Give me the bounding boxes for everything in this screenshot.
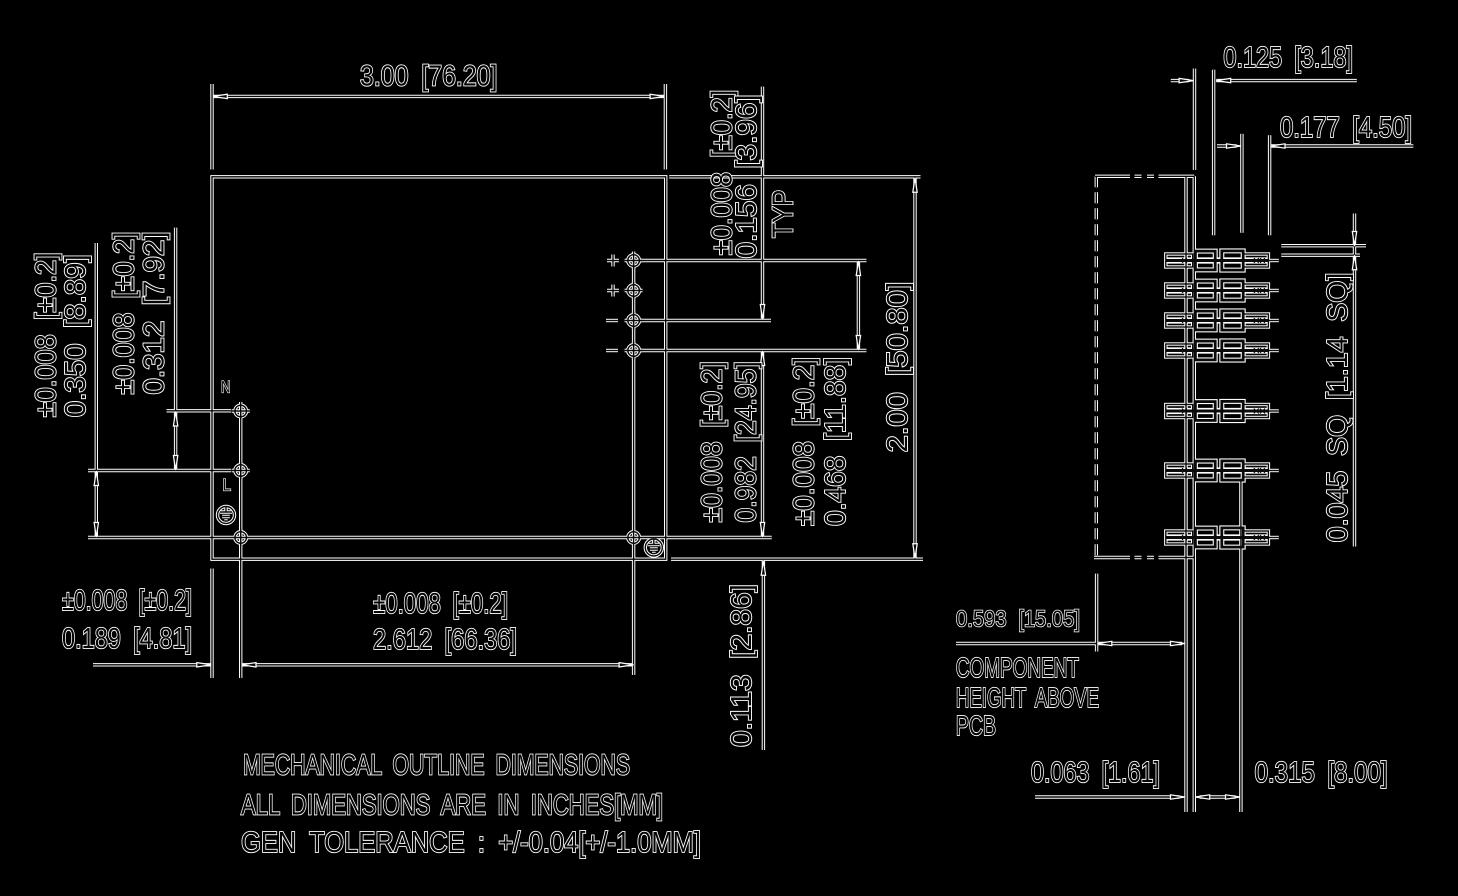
svg-text:COMPONENT: COMPONENT bbox=[956, 652, 1079, 683]
svg-text:±0.008 [±0.2]: ±0.008 [±0.2] bbox=[108, 232, 140, 395]
svg-text:3.00 [76.20]: 3.00 [76.20] bbox=[360, 61, 497, 93]
svg-text:2.612 [66.36]: 2.612 [66.36] bbox=[373, 624, 517, 656]
svg-text:TYP: TYP bbox=[768, 190, 800, 238]
svg-text:±0.008 [±0.2]: ±0.008 [±0.2] bbox=[789, 357, 821, 526]
svg-text:0.063 [1.61]: 0.063 [1.61] bbox=[1031, 757, 1160, 789]
svg-text:0.189 [4.81]: 0.189 [4.81] bbox=[62, 623, 192, 655]
svg-text:L: L bbox=[223, 477, 232, 495]
svg-text:MECHANICAL OUTLINE DIMENSIONS: MECHANICAL OUTLINE DIMENSIONS bbox=[243, 750, 630, 782]
svg-text:±0.008 [±0.2]: ±0.008 [±0.2] bbox=[31, 252, 63, 417]
svg-text:2.00 [50.80]: 2.00 [50.80] bbox=[882, 282, 914, 453]
svg-text:HEIGHT ABOVE: HEIGHT ABOVE bbox=[956, 682, 1099, 713]
svg-text:0.315 [8.00]: 0.315 [8.00] bbox=[1255, 757, 1388, 789]
svg-text:0.468 [11.88]: 0.468 [11.88] bbox=[820, 357, 852, 526]
svg-text:0.156 [3.96]: 0.156 [3.96] bbox=[731, 94, 763, 258]
svg-text:0.593 [15.05]: 0.593 [15.05] bbox=[956, 606, 1080, 632]
svg-text:±0.008 [±0.2]: ±0.008 [±0.2] bbox=[697, 361, 729, 522]
svg-text:0.982 [24.95]: 0.982 [24.95] bbox=[731, 361, 763, 522]
svg-text:0.350 [8.89]: 0.350 [8.89] bbox=[60, 254, 92, 417]
svg-text:0.177 [4.50]: 0.177 [4.50] bbox=[1280, 112, 1412, 144]
svg-text:±0.008 [±0.2]: ±0.008 [±0.2] bbox=[62, 585, 192, 617]
svg-text:0.312 [7.92]: 0.312 [7.92] bbox=[139, 232, 171, 395]
svg-text:±0.008 [±0.2]: ±0.008 [±0.2] bbox=[373, 588, 508, 620]
svg-text:PCB: PCB bbox=[956, 710, 996, 741]
svg-text:N: N bbox=[221, 379, 231, 397]
svg-text:0.125 [3.18]: 0.125 [3.18] bbox=[1223, 42, 1353, 74]
svg-text:0.113 [2.86]: 0.113 [2.86] bbox=[726, 584, 758, 747]
svg-text:0.045 SQ [1.14 SQ]: 0.045 SQ [1.14 SQ] bbox=[1322, 273, 1354, 543]
svg-text:GEN TOLERANCE : +/-0.04[+/-1.0: GEN TOLERANCE : +/-0.04[+/-1.0MM] bbox=[241, 827, 701, 859]
svg-text:ALL DIMENSIONS ARE IN INCHES[M: ALL DIMENSIONS ARE IN INCHES[MM] bbox=[241, 790, 663, 822]
